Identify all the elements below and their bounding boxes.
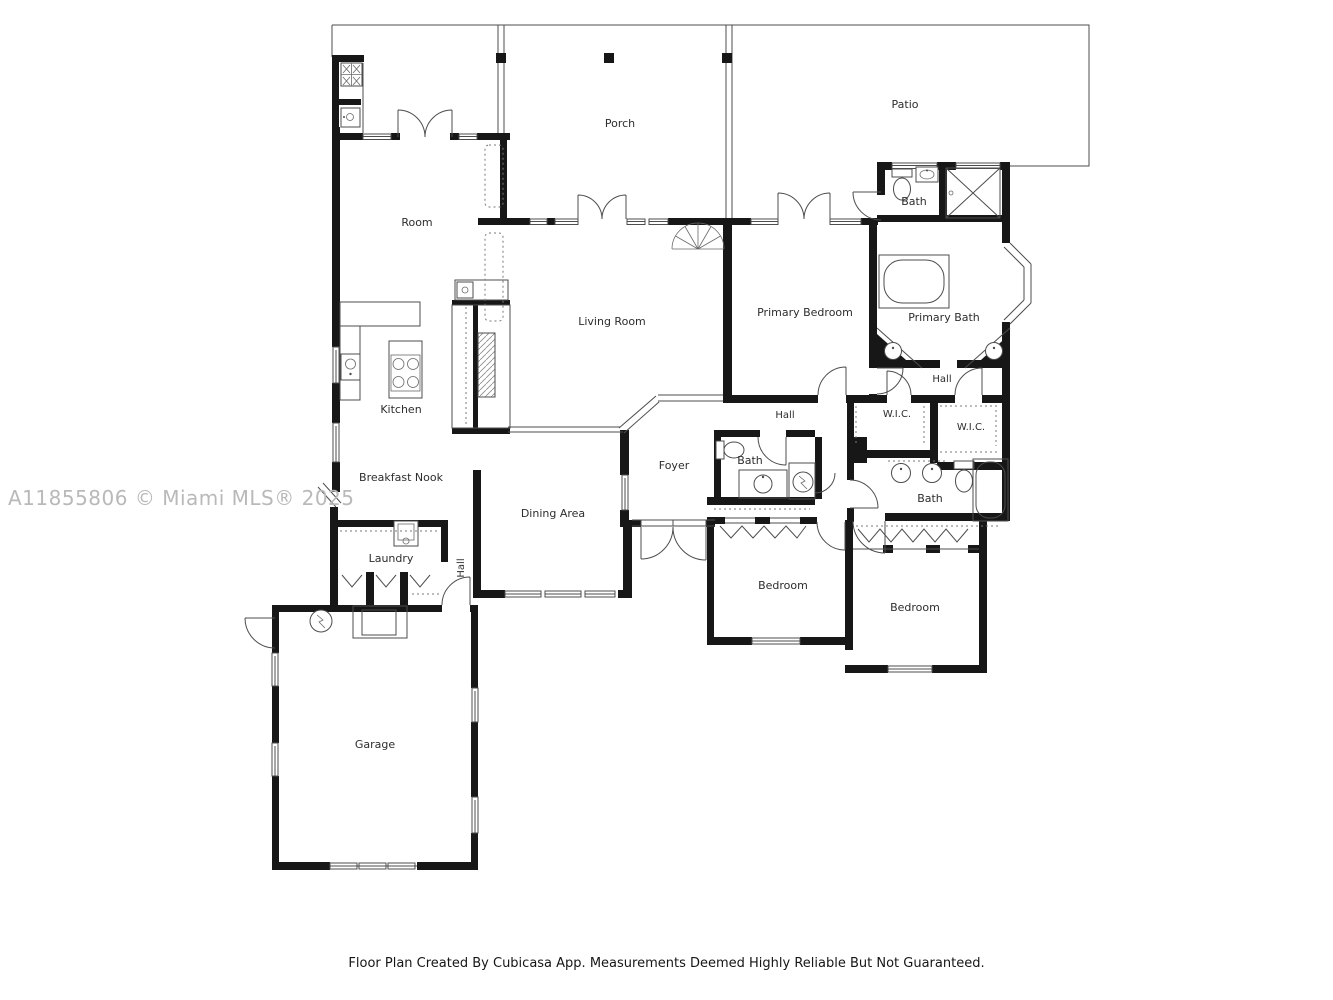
room-label-living-room: Living Room	[578, 315, 646, 328]
room-label-bath-lower: Bath	[917, 492, 943, 505]
porch-post	[604, 53, 614, 63]
mls-watermark: A11855806 © Miami MLS® 2025	[8, 486, 355, 510]
porch-post	[496, 53, 506, 63]
room-label-bath-middle: Bath	[737, 454, 763, 467]
room-label-breakfast-nook: Breakfast Nook	[359, 471, 444, 484]
room-label-bedroom-front: Bedroom	[758, 579, 808, 592]
room-label-foyer: Foyer	[659, 459, 690, 472]
sink-icon	[916, 167, 938, 182]
outdoor-sink-icon	[341, 108, 360, 127]
room-label-kitchen: Kitchen	[380, 403, 421, 416]
sink-icon	[923, 464, 942, 483]
room-label-hall-entry: Hall	[456, 558, 467, 577]
porch-post	[722, 53, 732, 63]
laundry-sink-icon	[394, 521, 418, 546]
stove-island-icon	[389, 341, 422, 398]
room-label-bedroom-rear: Bedroom	[890, 601, 940, 614]
room-label-patio: Patio	[892, 98, 919, 111]
room-label-hall-primary: Hall	[932, 374, 951, 385]
bar-sink-icon	[457, 282, 473, 298]
toilet-icon	[954, 461, 974, 492]
room-label-bath-upper: Bath	[901, 195, 927, 208]
spiral-stair-icon	[672, 223, 724, 249]
bathtub-icon	[879, 255, 949, 308]
vanity-sink-icon	[739, 470, 787, 498]
grill-icon	[341, 63, 362, 86]
sink-icon	[892, 464, 911, 483]
room-label-wic-right: W.I.C.	[957, 422, 985, 433]
kitchen-sink-icon	[341, 354, 360, 380]
water-heater-icon	[789, 463, 815, 499]
corner-sink-icon	[885, 343, 902, 360]
room-label-laundry: Laundry	[369, 552, 414, 565]
room-label-wic-left: W.I.C.	[883, 409, 911, 420]
porch-patio-outline	[332, 25, 1089, 218]
water-heater-icon	[310, 610, 332, 632]
shower-icon	[946, 168, 1000, 218]
room-label-garage: Garage	[355, 738, 396, 751]
room-label-primary-bedroom: Primary Bedroom	[757, 306, 853, 319]
room-label-hall-main: Hall	[775, 410, 794, 421]
middle-bath-fixtures	[716, 441, 815, 499]
room-label-dining-area: Dining Area	[521, 507, 585, 520]
walls	[272, 127, 1010, 870]
room-label-primary-bath: Primary Bath	[908, 311, 980, 324]
footer-disclaimer: Floor Plan Created By Cubicasa App. Meas…	[0, 956, 1333, 971]
upper-bath-fixtures	[892, 167, 1000, 218]
outdoor-kitchen	[332, 55, 364, 135]
room-label-porch: Porch	[605, 117, 635, 130]
kitchen-fixtures	[340, 302, 422, 400]
corner-sink-icon	[986, 343, 1003, 360]
floorplan-page: Porch Patio Room Living Room Kitchen Bre…	[0, 0, 1333, 1000]
room-labels: Porch Patio Room Living Room Kitchen Bre…	[355, 98, 985, 751]
room-label-room: Room	[401, 216, 432, 229]
